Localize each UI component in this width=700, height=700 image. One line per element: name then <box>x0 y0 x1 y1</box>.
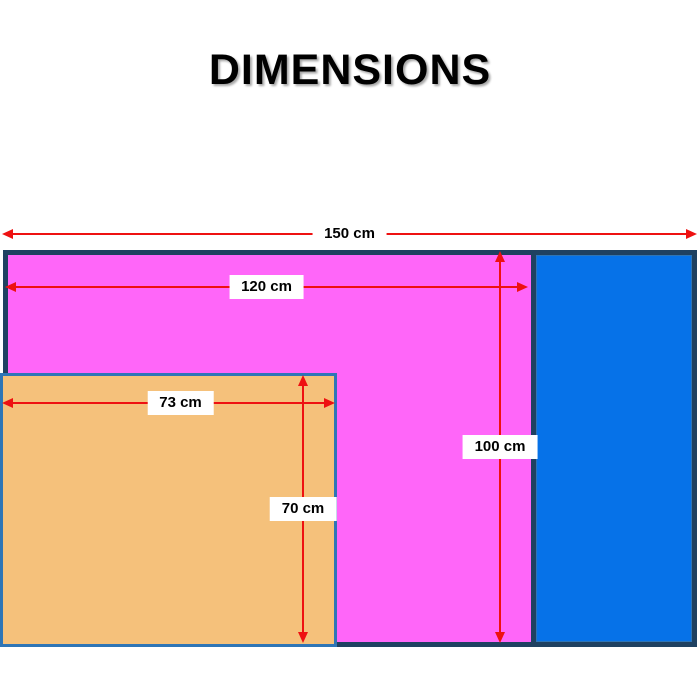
arrow-left-icon <box>2 229 13 239</box>
dimension-orange-height: 70 cm <box>296 376 310 642</box>
dimension-label-magenta-width: 120 cm <box>229 275 304 299</box>
arrow-left-icon <box>2 398 13 408</box>
blue-rectangle <box>531 250 697 647</box>
arrow-up-icon <box>298 375 308 386</box>
arrow-right-icon <box>324 398 335 408</box>
page-title: DIMENSIONS <box>0 46 700 95</box>
arrow-down-icon <box>298 632 308 643</box>
dimension-label-orange-height: 70 cm <box>270 497 337 521</box>
arrow-down-icon <box>495 632 505 643</box>
arrow-left-icon <box>5 282 16 292</box>
dimension-label-total-width: 150 cm <box>312 222 387 246</box>
dimension-magenta-width: 120 cm <box>6 280 527 294</box>
arrow-right-icon <box>686 229 697 239</box>
arrow-up-icon <box>495 251 505 262</box>
dimension-orange-width: 73 cm <box>3 396 334 410</box>
arrow-right-icon <box>517 282 528 292</box>
dimension-total-width: 150 cm <box>3 227 696 241</box>
dimension-label-magenta-height: 100 cm <box>463 435 538 459</box>
dimension-magenta-height: 100 cm <box>493 252 507 642</box>
dimension-label-orange-width: 73 cm <box>147 391 214 415</box>
dimensions-diagram: DIMENSIONS 150 cm 120 cm 73 cm 100 cm 70… <box>0 0 700 700</box>
